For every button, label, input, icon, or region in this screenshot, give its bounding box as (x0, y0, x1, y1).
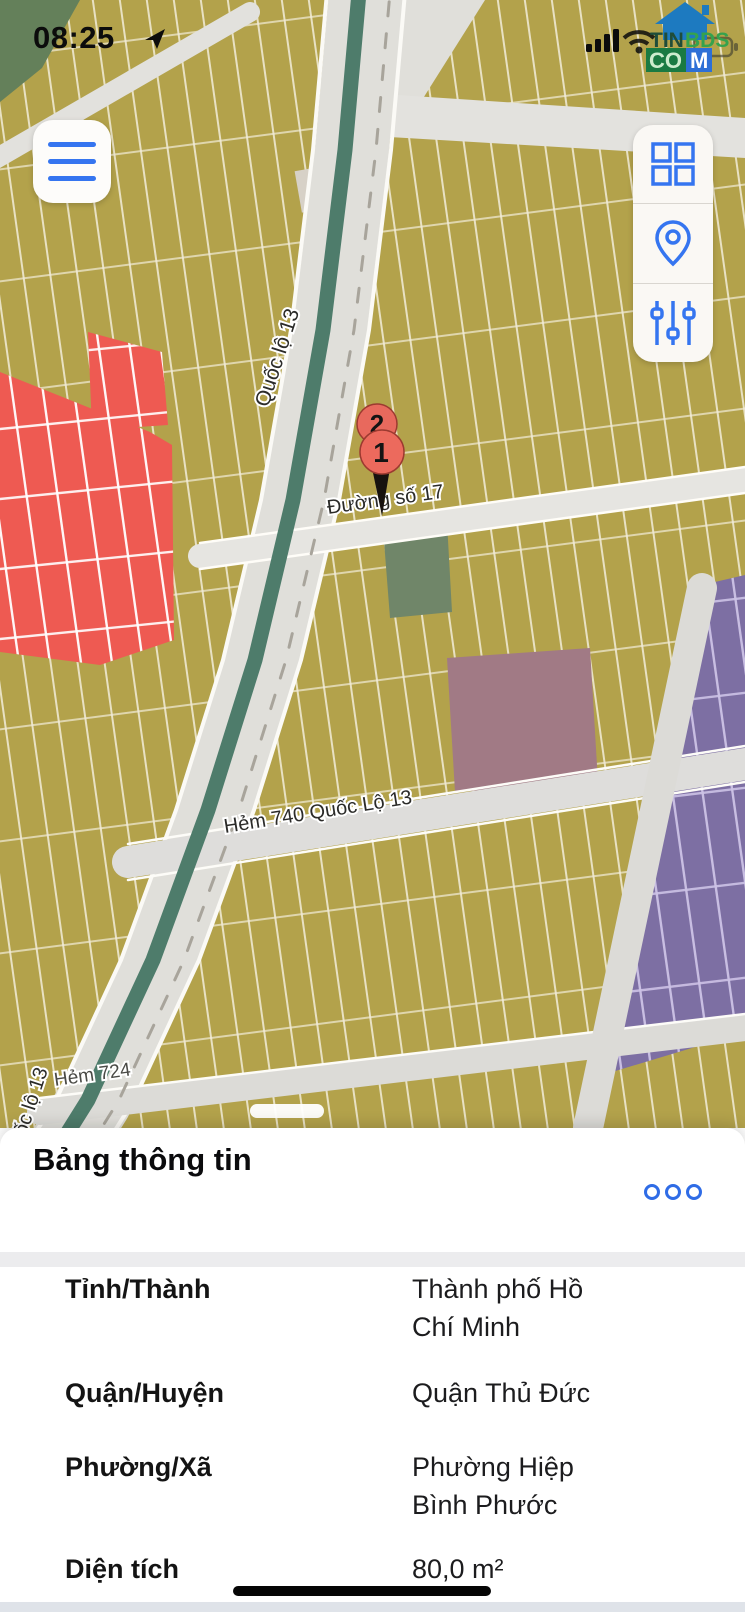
location-pin-icon (653, 219, 693, 267)
sheet-title: Bảng thông tin (33, 1142, 252, 1178)
app-screen: Quốc lộ 13 Đường số 17 Hẻm 740 Quốc Lộ 1… (0, 0, 745, 1612)
info-bottom-sheet (0, 1128, 745, 1612)
marker-1-number: 1 (373, 437, 389, 468)
info-row-area: Diện tích 80,0 m² (0, 1550, 745, 1588)
menu-button[interactable] (33, 120, 111, 203)
mauve-parcel (447, 648, 598, 792)
map-tools-panel (633, 125, 713, 362)
row-label: Phường/Xã (65, 1448, 412, 1524)
three-dots-icon (640, 1178, 710, 1208)
row-value: Thành phố Hồ Chí Minh (412, 1270, 612, 1346)
locate-button[interactable] (633, 203, 713, 282)
layers-button[interactable] (633, 125, 713, 203)
sheet-divider (0, 1252, 745, 1267)
filters-button[interactable] (633, 283, 713, 362)
grid-icon (650, 141, 696, 187)
row-value: 80,0 m² (412, 1550, 612, 1588)
more-options-button[interactable] (640, 1178, 710, 1208)
row-value: Quận Thủ Đức (412, 1374, 612, 1412)
info-row-ward: Phường/Xã Phường Hiệp Bình Phước (0, 1448, 745, 1524)
row-value: Phường Hiệp Bình Phước (412, 1448, 612, 1524)
info-row-province: Tỉnh/Thành Thành phố Hồ Chí Minh (0, 1270, 745, 1346)
home-indicator[interactable] (233, 1586, 491, 1596)
hamburger-icon (48, 142, 96, 147)
row-label: Quận/Huyện (65, 1374, 412, 1412)
bottom-strip (0, 1602, 745, 1612)
row-label: Diện tích (65, 1550, 412, 1588)
row-label: Tỉnh/Thành (65, 1270, 412, 1346)
info-row-district: Quận/Huyện Quận Thủ Đức (0, 1374, 745, 1412)
sliders-icon (649, 297, 697, 349)
